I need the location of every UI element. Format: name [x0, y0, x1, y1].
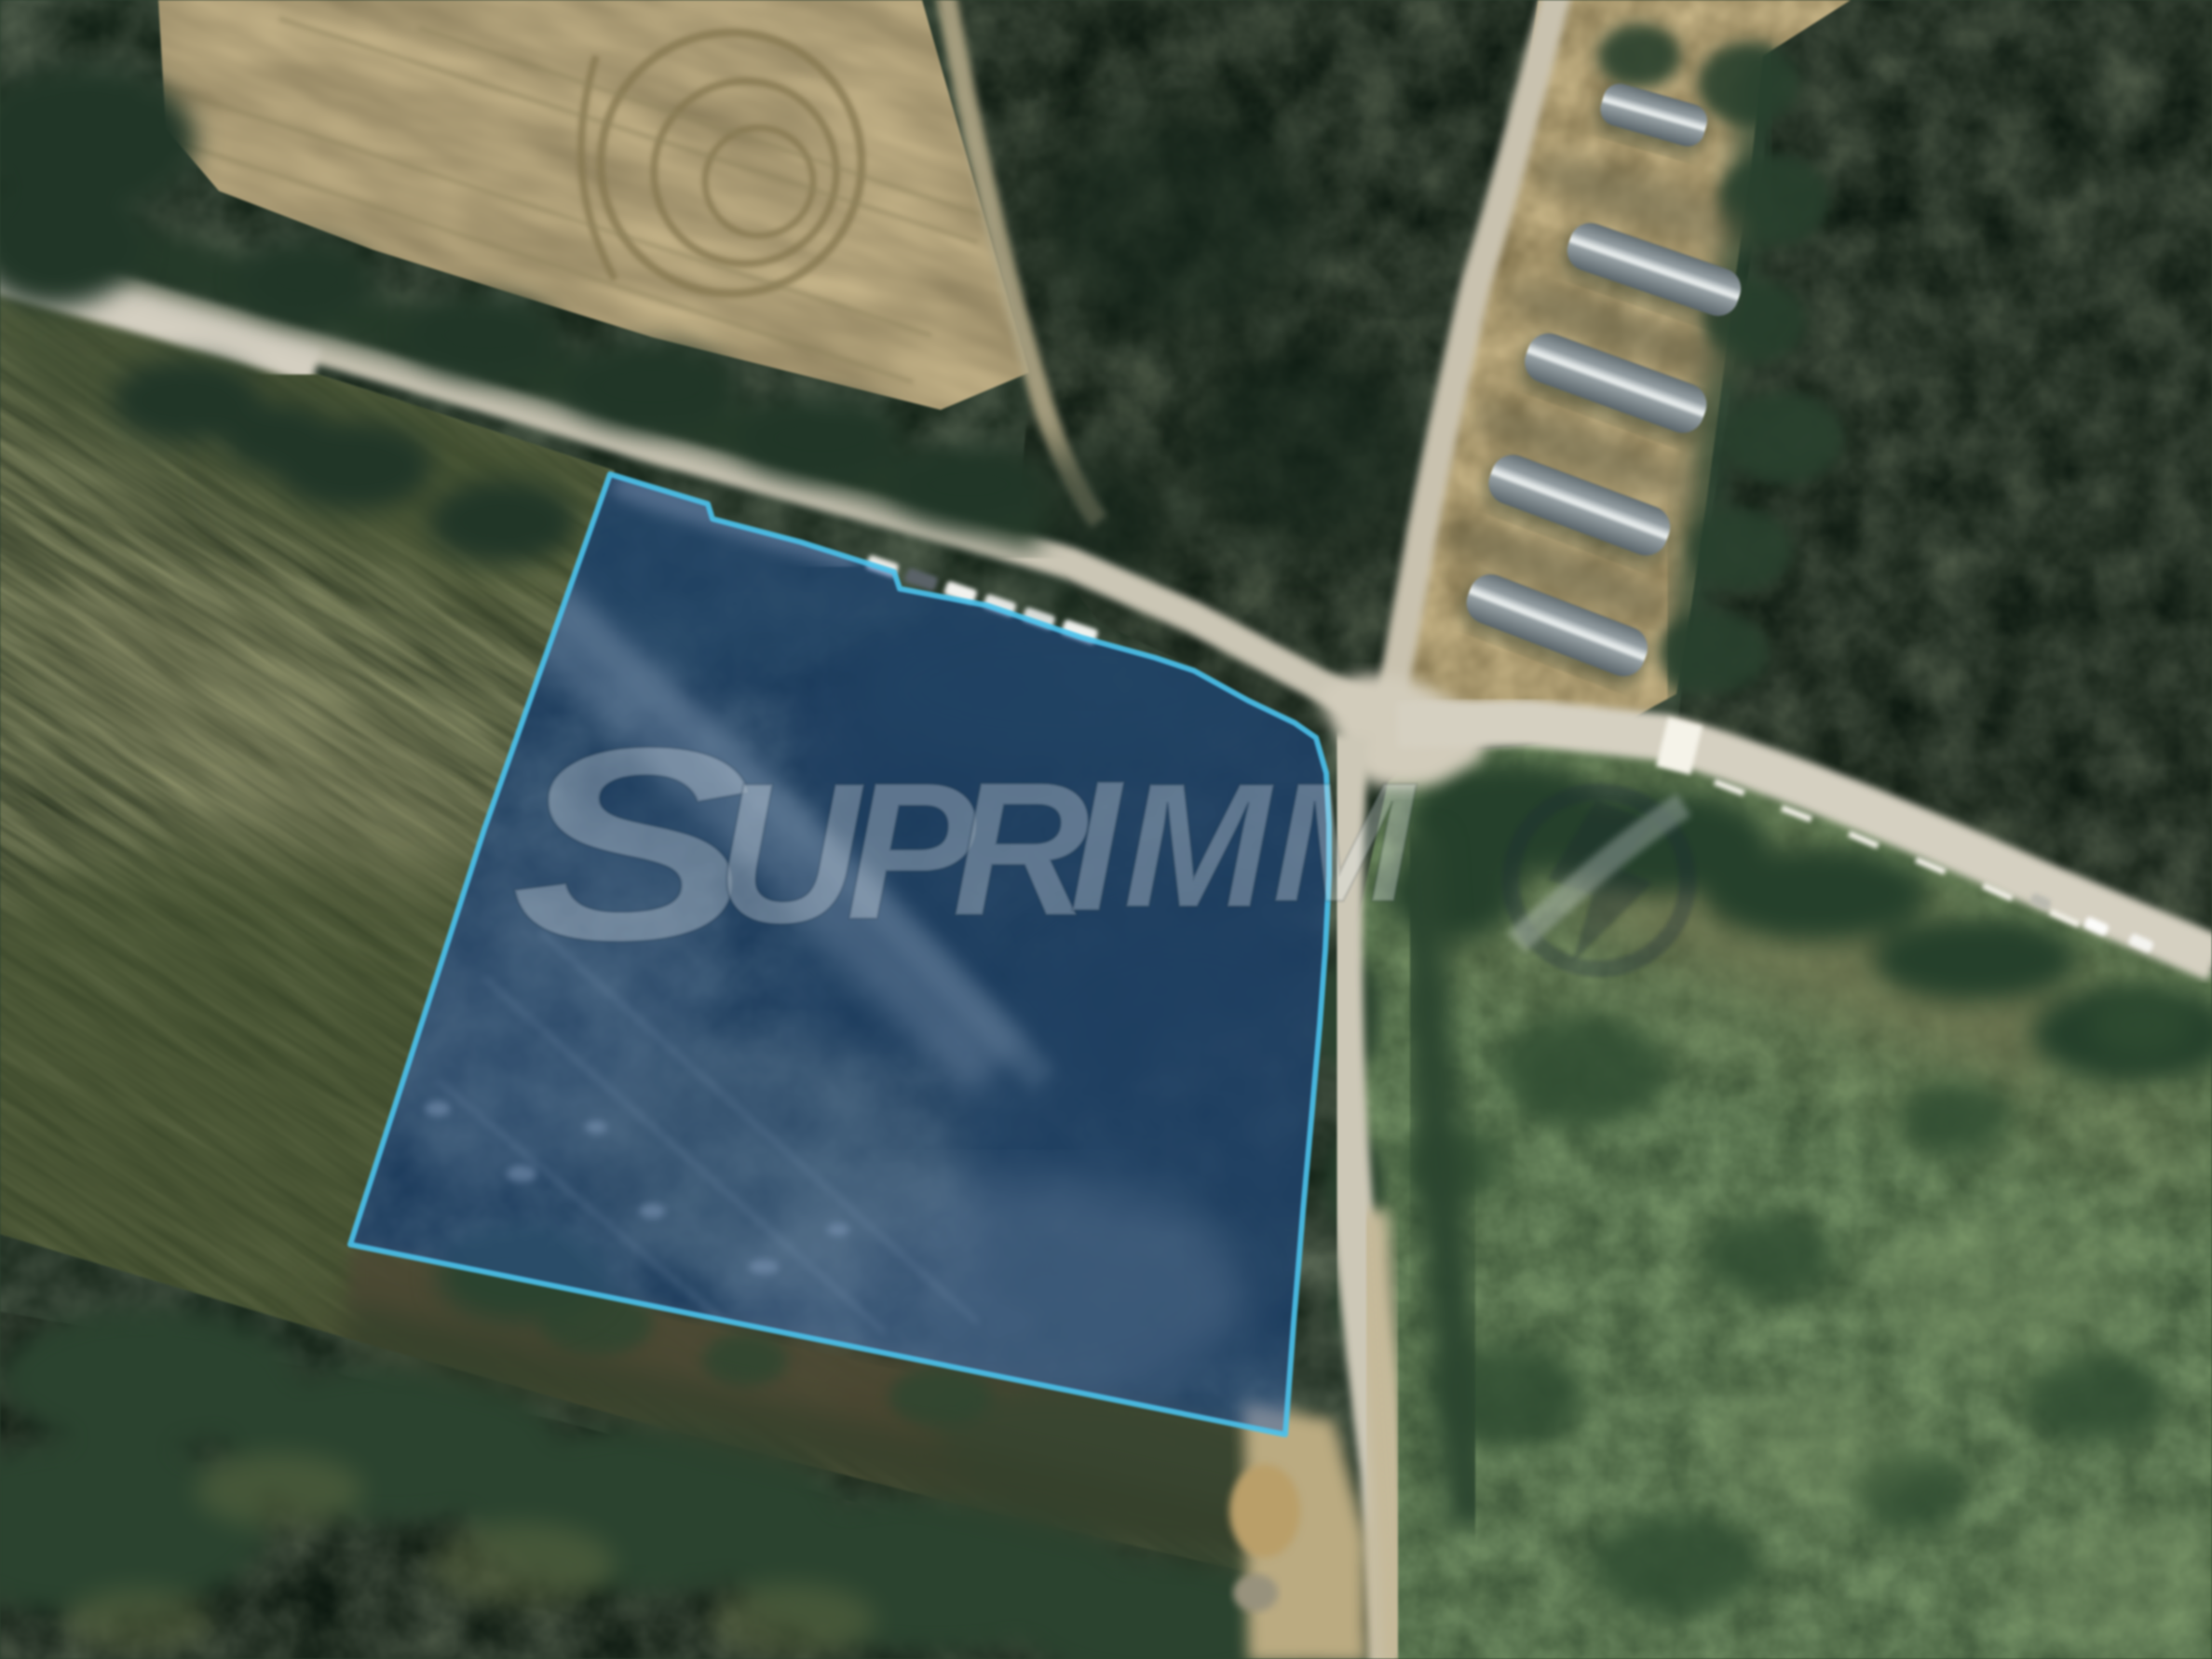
svg-text:M: M: [1272, 747, 1417, 937]
svg-text:M: M: [1123, 747, 1274, 945]
svg-text:I: I: [1069, 742, 1124, 950]
svg-text:U: U: [715, 741, 864, 965]
